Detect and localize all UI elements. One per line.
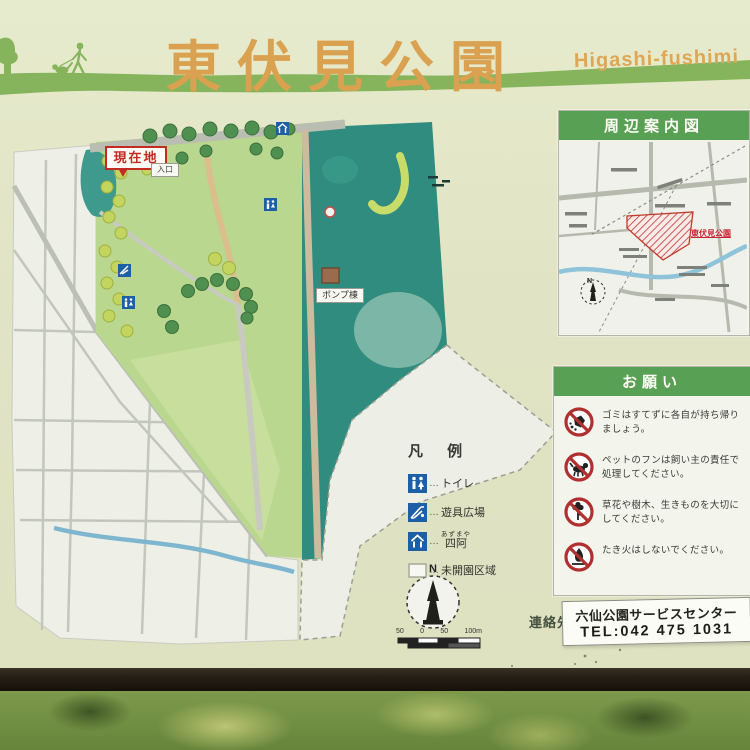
contact-tel: TEL:042 475 1031	[563, 621, 750, 641]
current-location-pin-icon	[118, 168, 128, 177]
notice-item-dog-waste: ペットのフンは飼い主の責任で処理してください。	[563, 451, 743, 483]
legend: 凡 例 … トイレ … 遊具広場	[408, 440, 538, 589]
legend-item-gazebo: … あずまや 四阿	[408, 531, 538, 551]
legend-label: トイレ	[441, 475, 474, 491]
legend-label: 遊具広場	[441, 504, 485, 520]
teal-texture	[322, 156, 358, 184]
teal-light-blob	[354, 292, 442, 368]
playground-map-icon	[118, 264, 131, 277]
scale-labels: 50 0 50 100m	[396, 628, 482, 635]
dog-waste-icon	[563, 451, 595, 483]
legend-leader: …	[429, 478, 439, 489]
notice-text: たき火はしないでください。	[602, 541, 729, 558]
vicinity-map: 東伏見公園 N	[559, 140, 749, 334]
round-map-icon	[325, 207, 335, 217]
legend-leader: …	[429, 565, 439, 576]
playground-icon	[408, 503, 427, 522]
legend-title: 凡 例	[408, 440, 538, 461]
notice-text: ペットのフンは飼い主の責任で処理してください。	[602, 451, 743, 482]
toilet-map-icon	[264, 198, 277, 211]
undeveloped-area-icon	[408, 561, 427, 580]
vicinity-north-label: N	[587, 278, 592, 285]
gazebo-icon	[408, 532, 427, 551]
scale-tick: 0	[420, 628, 424, 635]
grass-ground	[0, 691, 750, 750]
legend-item-playground: … 遊具広場	[408, 502, 538, 522]
entrance-label: 入口	[151, 163, 179, 177]
scale-tick: 50	[396, 628, 404, 635]
park-title-romaji: Higashi-fushimi	[574, 46, 740, 73]
legend-label: 未開園区域	[441, 562, 496, 578]
gazebo-map-icon	[276, 122, 289, 135]
toilet-icon	[408, 474, 427, 493]
notice-title: お願い	[554, 367, 750, 396]
protect-plants-icon	[563, 496, 595, 528]
vicinity-title: 周辺案内図	[559, 111, 749, 140]
dirt-specks	[511, 649, 621, 667]
notice-item-plants: 草花や樹木、生きものを大切にしてください。	[563, 496, 743, 528]
notice-item-fire: たき火はしないでください。	[563, 541, 743, 573]
notice-list: ゴミはすてずに各自が持ち帰りましょう。 ペットのフンは飼い主の責任で処理してくだ…	[554, 396, 750, 579]
pump-house	[322, 268, 339, 283]
toilet2-map-icon	[122, 296, 135, 309]
park-sign-photo: 東伏見公園 Higashi-fushimi 現在地 入口 ポンプ棟 N 50 0…	[0, 0, 750, 750]
legend-item-undeveloped: … 未開園区域	[408, 560, 538, 580]
legend-leader: …	[429, 507, 439, 518]
notice-text: 草花や樹木、生きものを大切にしてください。	[602, 496, 743, 527]
scale-tick: 100m	[464, 628, 482, 635]
contact-sticker: 六仙公園サービスセンター TEL:042 475 1031	[562, 597, 750, 646]
walker-with-dog-icon	[52, 43, 86, 77]
tree-silhouette-icon	[0, 38, 18, 76]
legend-label: 四阿	[445, 539, 467, 550]
no-fire-icon	[563, 541, 595, 573]
pump-house-label: ポンプ棟	[316, 288, 364, 303]
notice-panel: お願い ゴミはすてずに各自が持ち帰りましょう。	[553, 366, 750, 596]
scale-bar	[398, 638, 480, 648]
legend-leader: …	[429, 536, 439, 547]
vicinity-panel: 周辺案内図	[558, 110, 750, 336]
park-title: 東伏見公園	[166, 22, 521, 102]
legend-item-toilet: … トイレ	[408, 473, 538, 493]
scale-tick: 50	[440, 628, 448, 635]
notice-text: ゴミはすてずに各自が持ち帰りましょう。	[602, 406, 743, 437]
legend-label-with-furigana: あずまや 四阿	[441, 532, 471, 550]
no-litter-icon	[563, 406, 595, 438]
notice-item-litter: ゴミはすてずに各自が持ち帰りましょう。	[563, 406, 743, 438]
vicinity-park-label: 東伏見公園	[691, 228, 731, 239]
sign-frame	[0, 668, 750, 691]
